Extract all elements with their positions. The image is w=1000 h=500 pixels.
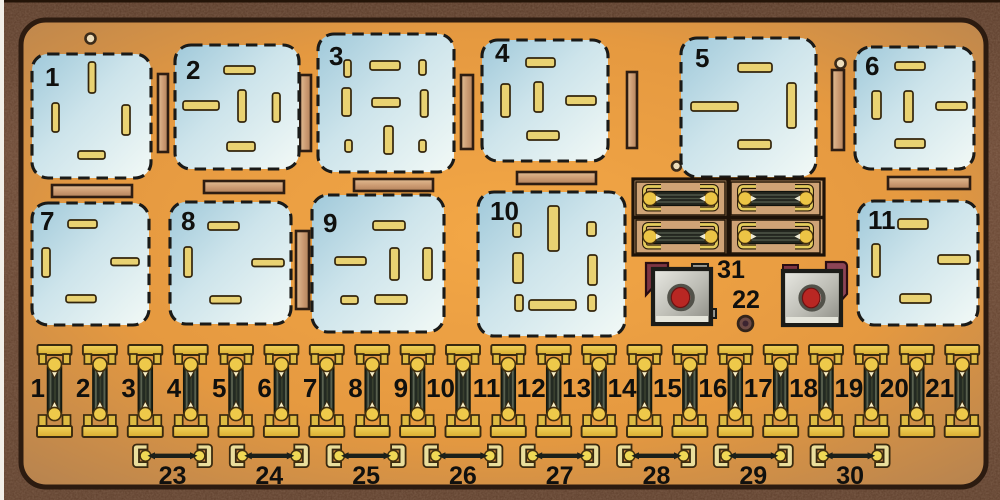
svg-text:18: 18 <box>789 373 818 403</box>
svg-text:14: 14 <box>608 373 637 403</box>
svg-text:9: 9 <box>394 373 408 403</box>
svg-text:9: 9 <box>323 208 337 238</box>
svg-text:1: 1 <box>31 373 45 403</box>
svg-text:12: 12 <box>517 373 546 403</box>
svg-text:7: 7 <box>40 206 54 236</box>
svg-text:21: 21 <box>925 373 954 403</box>
svg-text:22: 22 <box>732 286 760 314</box>
svg-text:10: 10 <box>426 373 455 403</box>
svg-text:3: 3 <box>121 373 135 403</box>
svg-text:23: 23 <box>159 462 187 490</box>
svg-text:19: 19 <box>834 373 863 403</box>
svg-text:16: 16 <box>698 373 727 403</box>
svg-text:30: 30 <box>836 462 864 490</box>
svg-text:20: 20 <box>880 373 909 403</box>
svg-text:31: 31 <box>717 256 745 284</box>
svg-text:2: 2 <box>186 55 200 85</box>
svg-text:2: 2 <box>76 373 90 403</box>
svg-text:27: 27 <box>546 462 574 490</box>
svg-text:26: 26 <box>449 462 477 490</box>
svg-text:4: 4 <box>495 38 510 68</box>
svg-text:7: 7 <box>303 373 317 403</box>
svg-text:10: 10 <box>490 196 519 226</box>
svg-text:13: 13 <box>562 373 591 403</box>
svg-text:11: 11 <box>473 373 501 403</box>
svg-text:15: 15 <box>653 373 682 403</box>
svg-text:29: 29 <box>739 462 767 490</box>
svg-text:24: 24 <box>255 462 283 490</box>
svg-text:17: 17 <box>744 373 773 403</box>
svg-text:6: 6 <box>257 373 271 403</box>
svg-text:1: 1 <box>45 62 59 92</box>
svg-text:8: 8 <box>181 206 195 236</box>
svg-text:25: 25 <box>352 462 380 490</box>
svg-text:3: 3 <box>329 41 343 71</box>
svg-text:5: 5 <box>212 373 226 403</box>
svg-text:28: 28 <box>643 462 671 490</box>
svg-text:8: 8 <box>348 373 362 403</box>
svg-text:5: 5 <box>695 43 709 73</box>
svg-text:6: 6 <box>865 51 879 81</box>
svg-text:11: 11 <box>868 205 896 235</box>
svg-text:4: 4 <box>167 373 182 403</box>
